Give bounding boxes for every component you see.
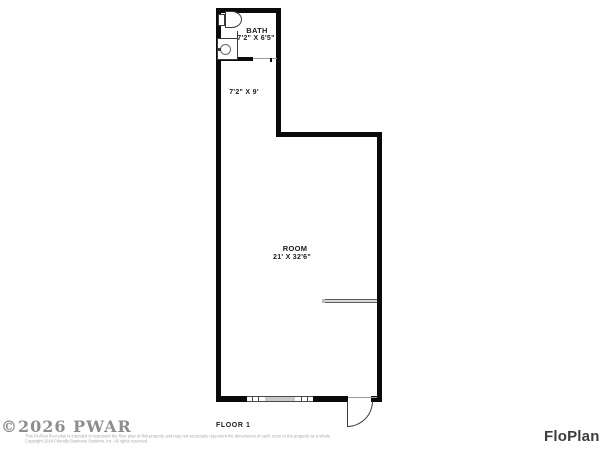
room-label: ROOM: [265, 244, 325, 253]
bath-door-jamb: [270, 58, 272, 62]
entry-door-swing-arc: [347, 401, 373, 427]
window-symbol: [247, 396, 313, 402]
room-dimensions: 21' X 32'6": [262, 254, 322, 261]
window-mullion-tick: [258, 397, 259, 401]
wall-left: [216, 8, 221, 402]
disclaimer-line-2: Copyright 2024 Friendly Business Systems…: [25, 439, 393, 444]
window-mullion-tick: [301, 397, 302, 401]
bath-label: BATH: [232, 26, 282, 35]
half-wall: [325, 299, 377, 303]
hall-dimensions: 7'2" X 9': [214, 89, 274, 96]
floplan-logo: FloPlan: [544, 428, 600, 445]
toilet-tank-icon: [218, 14, 225, 26]
window-glass-band: [265, 397, 295, 401]
bath-door-opening-line: [253, 58, 277, 59]
window-mullion-tick: [252, 397, 253, 401]
wall-step-horizontal: [276, 132, 382, 137]
faucet-dot-icon: [218, 48, 221, 51]
entry-door-opening-line: [348, 397, 377, 398]
disclaimer-text: This FloPlan floor plan is intended to r…: [25, 434, 393, 444]
bath-dimensions: 7'2" X 6'5": [226, 35, 286, 42]
floorplan-canvas: BATH 7'2" X 6'5" 7'2" X 9' ROOM 21' X 32…: [0, 0, 600, 450]
sink-basin-icon: [220, 44, 231, 55]
window-mullion-tick: [307, 397, 308, 401]
wall-right-lower: [377, 132, 382, 402]
floor-label: FLOOR 1: [216, 422, 251, 429]
